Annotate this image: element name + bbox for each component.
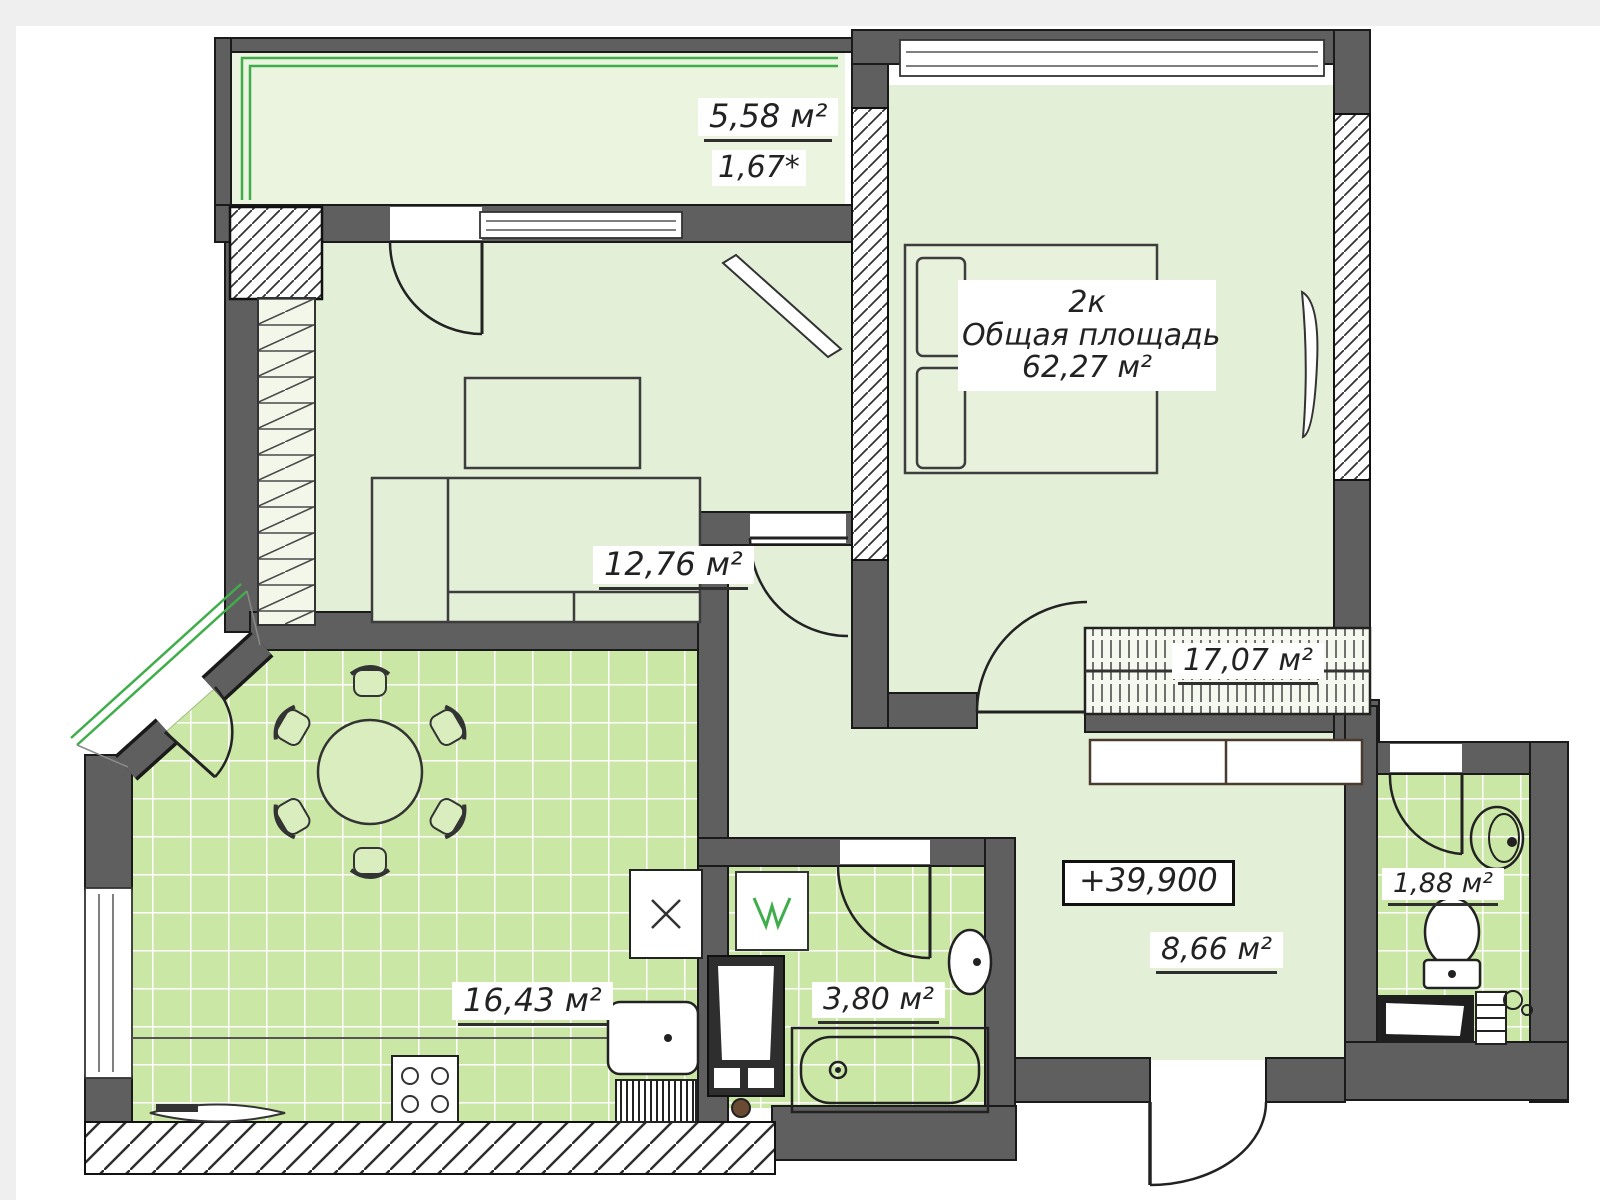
washing-machine bbox=[736, 872, 808, 950]
dining-table bbox=[318, 720, 422, 824]
bathroom-door-opening bbox=[840, 840, 930, 864]
apartment-title: 2к Общая площадь 62,27 м² bbox=[958, 280, 1216, 391]
kitchen-left-wall-top bbox=[85, 755, 132, 890]
sink-drain bbox=[664, 1034, 672, 1042]
floor-plan: 5,58 м² 1,67* 2к Общая площадь 62,27 м² … bbox=[0, 0, 1600, 1200]
kitchen-window bbox=[85, 888, 132, 1078]
living-left-wall bbox=[225, 242, 258, 632]
elevation-mark: +39,900 bbox=[1062, 860, 1235, 906]
entrance-wall-left bbox=[1015, 1058, 1150, 1102]
bathroom-area-label: 3,80 м² bbox=[812, 982, 945, 1018]
bedroom-entry-wall bbox=[888, 693, 977, 728]
bathroom-bottom-wall bbox=[772, 1106, 1016, 1160]
kitchen-area-label: 16,43 м² bbox=[452, 982, 613, 1020]
balcony-area-label: 5,58 м² bbox=[698, 98, 838, 136]
sink-drainer-grille bbox=[616, 1080, 696, 1122]
hallway-area-label: 8,66 м² bbox=[1150, 932, 1283, 968]
kitchen-sink bbox=[608, 1002, 698, 1122]
image-border-left bbox=[0, 0, 16, 1200]
wc-door-opening bbox=[1390, 744, 1462, 772]
bedroom-area-label: 17,07 м² bbox=[1172, 643, 1324, 679]
bathroom-sink-bowl bbox=[949, 930, 991, 994]
sink-basin bbox=[608, 1002, 698, 1074]
wc-area-label: 1,88 м² bbox=[1382, 868, 1504, 900]
bathroom-sink bbox=[949, 930, 991, 994]
fan-hub bbox=[1508, 838, 1517, 847]
column-bedroom-left bbox=[852, 108, 888, 560]
living-closet bbox=[258, 298, 315, 625]
bathtub-drain-dot bbox=[836, 1068, 841, 1073]
apartment-total-area-label: Общая площадь bbox=[962, 320, 1212, 352]
living-room-area-label: 12,76 м² bbox=[593, 546, 754, 584]
bathroom-sink-drain bbox=[973, 958, 981, 966]
wc-bottom-wall bbox=[1345, 1042, 1568, 1100]
entrance-wall-right bbox=[1266, 1058, 1345, 1102]
bedroom-right-wall-top bbox=[1334, 30, 1370, 114]
apartment-total-area: 62,27 м² bbox=[962, 352, 1212, 384]
coffee-table bbox=[465, 378, 640, 468]
entrance-door-arc bbox=[1150, 1102, 1266, 1185]
bedroom-left-wall-bottom bbox=[852, 560, 888, 728]
shaft-foot-1 bbox=[714, 1068, 740, 1088]
bottom-hatched-wall bbox=[85, 1122, 775, 1174]
bedroom-window bbox=[900, 40, 1324, 76]
balcony-left-wall bbox=[215, 38, 231, 210]
apartment-name: 2к bbox=[962, 287, 1212, 319]
shaft-toilet bbox=[718, 966, 774, 1060]
balcony-top-wall bbox=[215, 38, 852, 52]
stove bbox=[392, 1056, 458, 1122]
floor-drain bbox=[732, 1099, 750, 1117]
vanity-basin bbox=[1386, 1003, 1464, 1036]
living-window bbox=[480, 212, 682, 238]
corridor-floor bbox=[728, 545, 852, 845]
balcony-coefficient-label: 1,67* bbox=[712, 150, 806, 186]
column-bedroom-right bbox=[1334, 114, 1370, 480]
balcony-door-opening bbox=[390, 207, 482, 240]
image-border-top bbox=[0, 0, 1600, 26]
column-top-left bbox=[230, 207, 322, 299]
bathroom-right-wall bbox=[985, 838, 1015, 1138]
shaft-foot-2 bbox=[748, 1068, 774, 1088]
stove-body bbox=[392, 1056, 458, 1122]
dresser bbox=[1090, 740, 1362, 784]
radiator-valve bbox=[156, 1104, 198, 1112]
kitchen-left-wall-bottom bbox=[85, 1076, 132, 1128]
toilet-button bbox=[1448, 970, 1456, 978]
toilet-shaft bbox=[708, 956, 784, 1117]
wc-toilet bbox=[1424, 898, 1480, 988]
toilet-bowl bbox=[1425, 898, 1479, 966]
